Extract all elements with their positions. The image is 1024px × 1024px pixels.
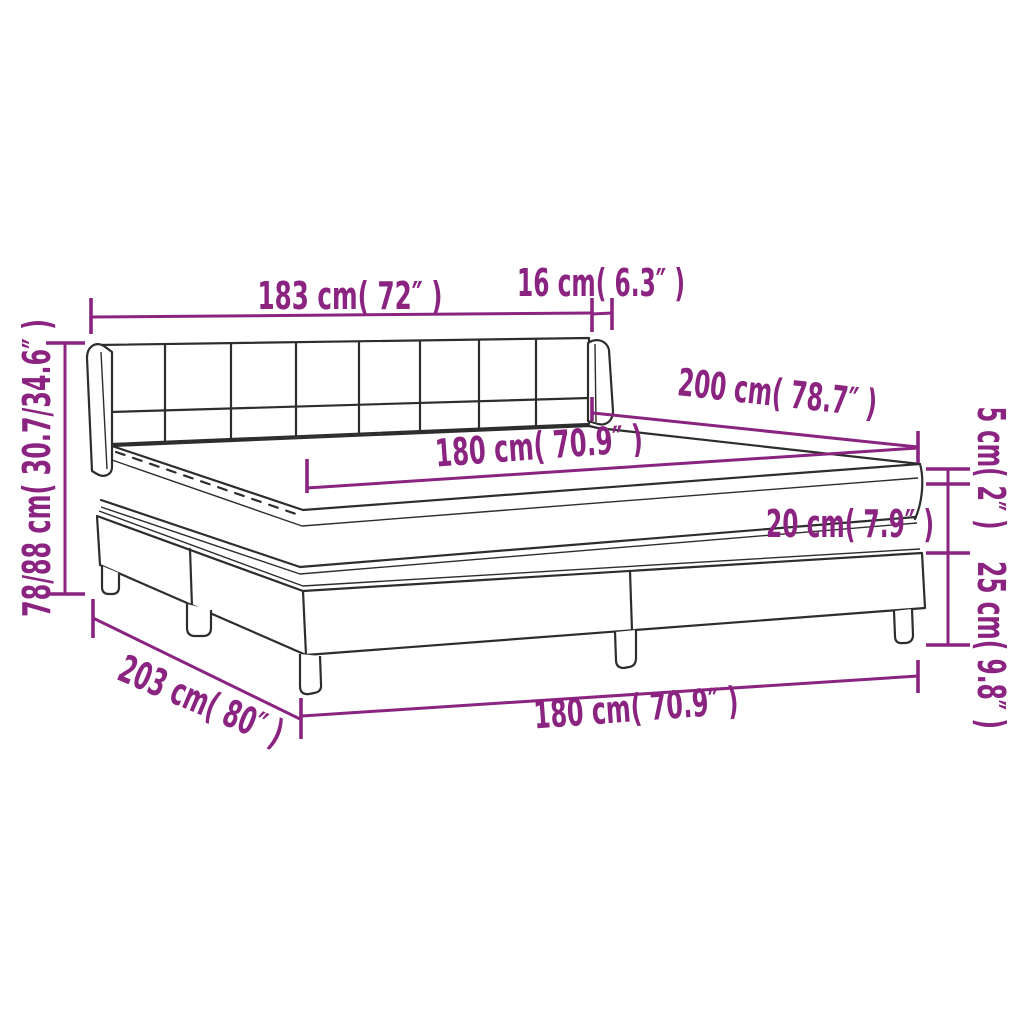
dimension-diagram: 183 cm( 72″ ) 16 cm( 6.3″ ) 200 cm( 78.7… (0, 0, 1024, 1024)
bed-leg (894, 609, 913, 643)
label-total-height: 78/88 cm( 30.7/34.6″ ) (15, 319, 59, 617)
label-base-width: 180 cm( 70.9″ ) (532, 679, 740, 738)
bed-dimension-drawing: 183 cm( 72″ ) 16 cm( 6.3″ ) 200 cm( 78.7… (0, 0, 1024, 1024)
label-bed-length: 200 cm( 78.7″ ) (676, 360, 880, 426)
label-mattress-height: 20 cm( 7.9″ ) (766, 502, 934, 546)
dimension-annotations: 183 cm( 72″ ) 16 cm( 6.3″ ) 200 cm( 78.7… (15, 261, 1013, 755)
bed-leg (615, 630, 636, 668)
label-headboard-width: 183 cm( 72″ ) (258, 274, 443, 318)
label-topper-height: 5 cm( 2″ ) (969, 407, 1013, 530)
headboard-left-wing (87, 344, 112, 476)
dim-line-headboard-depth (592, 313, 612, 314)
label-base-height: 25 cm( 9.8″ ) (969, 561, 1013, 729)
label-headboard-depth: 16 cm( 6.3″ ) (517, 261, 685, 305)
right-wing-inner-edge (595, 344, 596, 422)
bed-leg (300, 654, 321, 694)
